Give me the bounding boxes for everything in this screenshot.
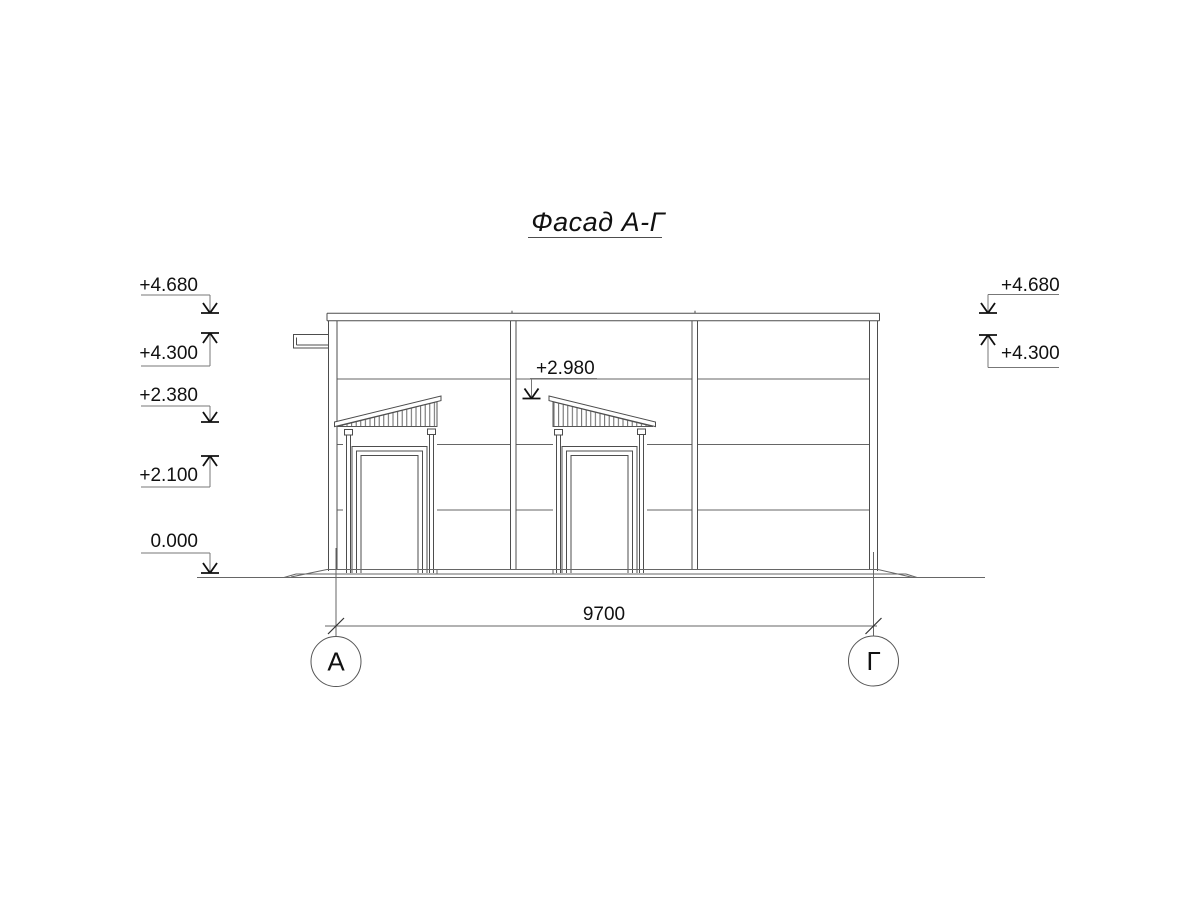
elevation-marks-left: +4.680 +4.300 +2.380 +2.100 0.000: [139, 275, 219, 573]
column-right: [692, 321, 698, 570]
parapet-cap: [327, 311, 880, 321]
base-ground: [197, 570, 985, 578]
elevation-mark-4680-right: +4.680: [979, 275, 1060, 313]
elevation-value: +4.300: [139, 343, 198, 364]
elevation-mark-4300-left: +4.300: [139, 333, 219, 366]
axis-bubble-a: А: [311, 637, 361, 687]
axis-bubble-g: Г: [849, 636, 899, 686]
elevation-mark-4680-left: +4.680: [139, 275, 219, 313]
column-middle: [511, 321, 517, 570]
facade-drawing: Фасад А-Г: [0, 0, 1200, 900]
elevation-value: +2.100: [139, 465, 198, 486]
elevation-value: +4.300: [1001, 343, 1060, 364]
building-facade: [197, 311, 985, 578]
elevation-marks-right: +4.680 +4.300: [979, 275, 1060, 368]
elevation-mark-2980-canopy: +2.980: [523, 358, 598, 399]
gutter-outlet: [294, 335, 329, 349]
elevation-mark-0000-left: 0.000: [141, 531, 219, 573]
axis-label: Г: [866, 646, 880, 676]
elevation-mark-2380-left: +2.380: [139, 385, 219, 422]
elevation-value: 0.000: [150, 531, 198, 552]
elevation-value: +2.980: [536, 358, 595, 379]
elevation-value: +2.380: [139, 385, 198, 406]
drawing-title: Фасад А-Г: [531, 207, 666, 237]
door-1-canopy: [335, 396, 442, 427]
elevation-value: +4.680: [1001, 275, 1060, 296]
elevation-mark-2100-left: +2.100: [139, 456, 219, 487]
dimension-value: 9700: [583, 604, 625, 625]
door-2-canopy: [549, 396, 656, 427]
elevation-value: +4.680: [139, 275, 198, 296]
title-block: Фасад А-Г: [528, 207, 667, 238]
axis-label: А: [327, 647, 345, 677]
elevation-mark-4300-right: +4.300: [979, 335, 1060, 368]
